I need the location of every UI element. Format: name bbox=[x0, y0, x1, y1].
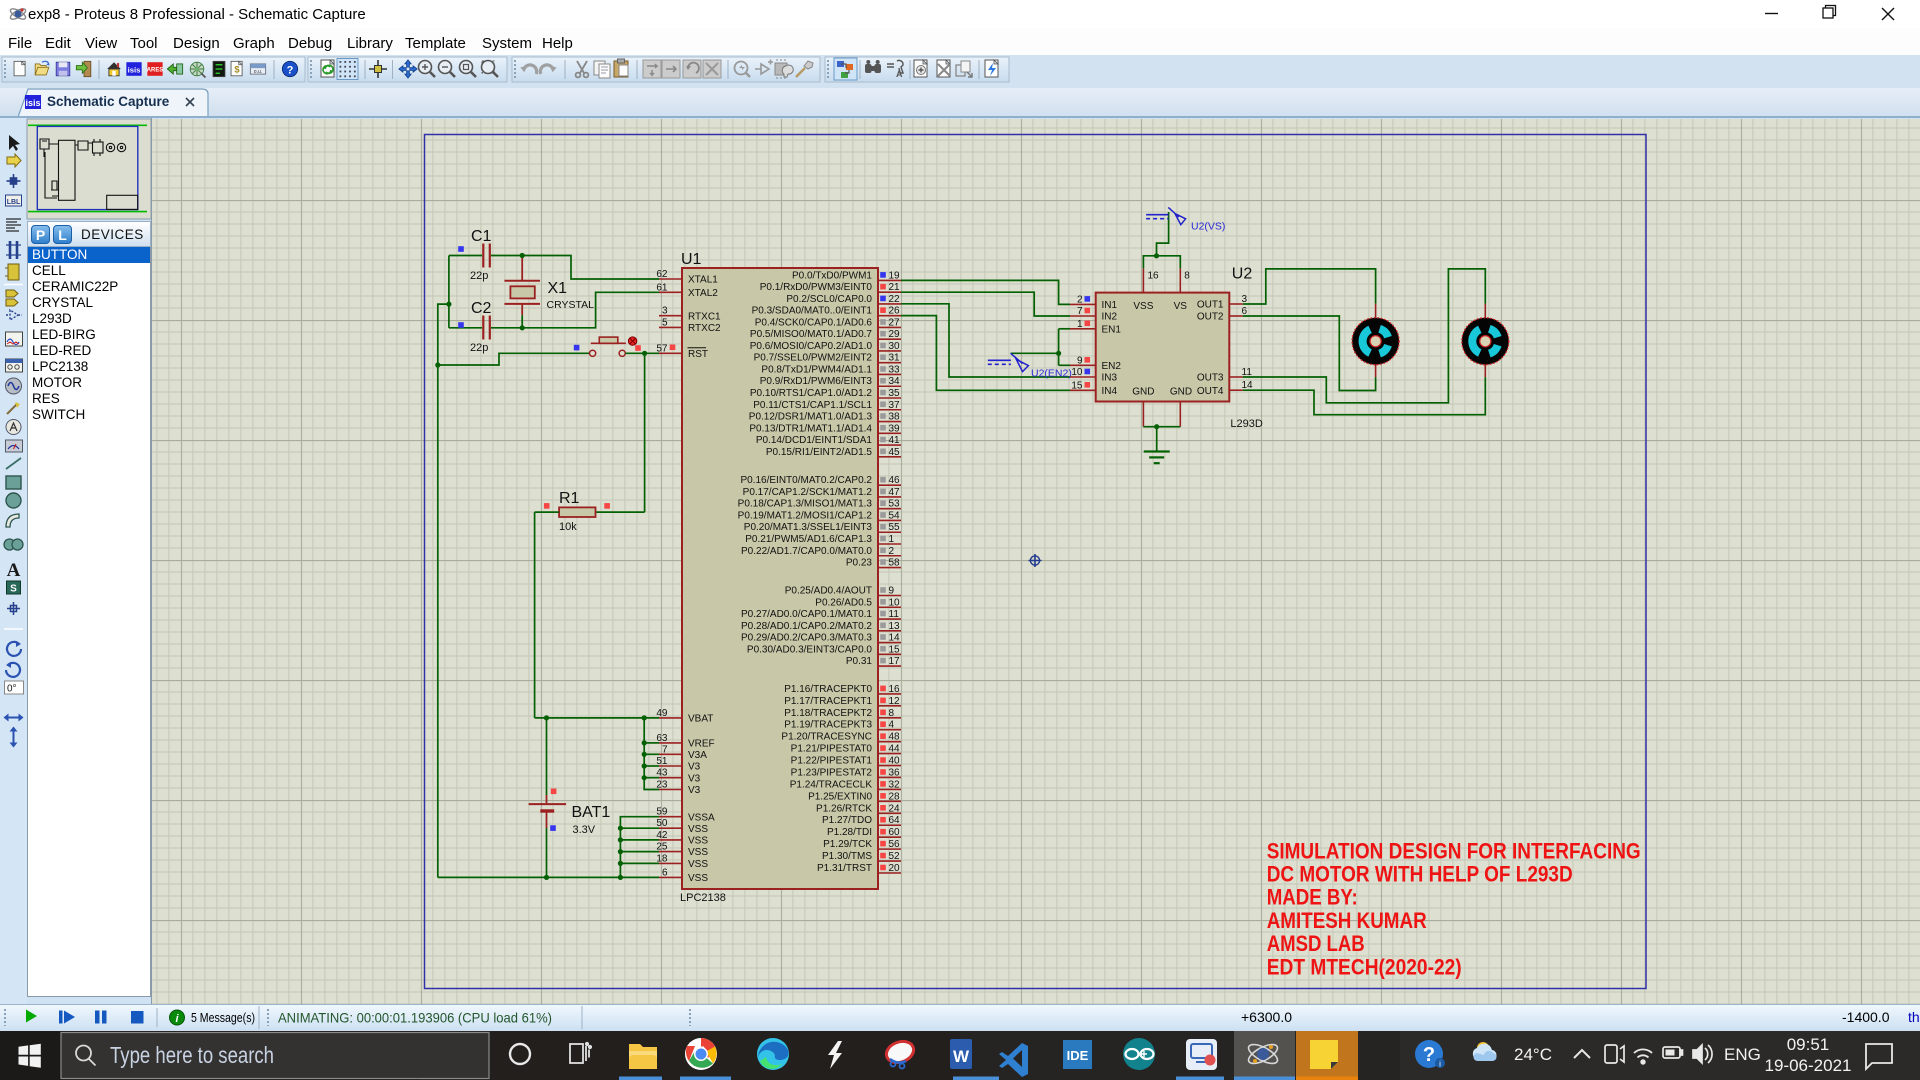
svg-text:XTAL1: XTAL1 bbox=[688, 275, 718, 286]
svg-text:ENG: ENG bbox=[1724, 1045, 1761, 1064]
svg-text:41: 41 bbox=[889, 435, 901, 446]
svg-text:CRYSTAL: CRYSTAL bbox=[547, 299, 595, 311]
svg-text:P1.28/TDI: P1.28/TDI bbox=[827, 827, 872, 838]
svg-text:44: 44 bbox=[889, 744, 901, 755]
svg-text:?: ? bbox=[287, 64, 294, 76]
svg-text:16: 16 bbox=[1148, 271, 1160, 282]
svg-text:P0.0/TxD0/PWM1: P0.0/TxD0/PWM1 bbox=[792, 270, 872, 281]
svg-text:29: 29 bbox=[889, 329, 901, 340]
svg-text:32: 32 bbox=[889, 779, 901, 790]
svg-text:27: 27 bbox=[889, 317, 901, 328]
svg-text:P0.28/AD0.1/CAP0.2/MAT0.2: P0.28/AD0.1/CAP0.2/MAT0.2 bbox=[741, 621, 872, 632]
svg-text:5: 5 bbox=[662, 317, 668, 328]
svg-text:P0.13/DTR1/MAT1.1/AD1.4: P0.13/DTR1/MAT1.1/AD1.4 bbox=[749, 423, 872, 434]
svg-text:7: 7 bbox=[1077, 306, 1083, 317]
svg-text:o.u.: o.u. bbox=[254, 69, 263, 75]
svg-text:28: 28 bbox=[889, 791, 901, 802]
svg-text:-1400.0: -1400.0 bbox=[1842, 1009, 1890, 1025]
svg-text:P0.29/AD0.2/CAP0.3/MAT0.3: P0.29/AD0.2/CAP0.3/MAT0.3 bbox=[741, 633, 872, 644]
svg-text:P1.18/TRACEPKT2: P1.18/TRACEPKT2 bbox=[784, 708, 872, 719]
svg-text:P1.21/PIPESTAT0: P1.21/PIPESTAT0 bbox=[791, 744, 873, 755]
svg-text:37: 37 bbox=[889, 400, 901, 411]
svg-text:XTAL2: XTAL2 bbox=[688, 288, 718, 299]
svg-text:P0.23: P0.23 bbox=[846, 558, 873, 569]
svg-text:21: 21 bbox=[889, 282, 901, 293]
svg-text:U2(VS): U2(VS) bbox=[1191, 221, 1225, 233]
svg-text:22p: 22p bbox=[470, 270, 488, 282]
svg-text:15: 15 bbox=[889, 644, 901, 655]
svg-text:64: 64 bbox=[889, 815, 901, 826]
svg-text:22: 22 bbox=[889, 294, 901, 305]
svg-text:2: 2 bbox=[889, 546, 895, 557]
svg-text:P1.22/PIPESTAT1: P1.22/PIPESTAT1 bbox=[791, 756, 873, 767]
svg-text:P0.7/SSEL0/PWM2/EINT2: P0.7/SSEL0/PWM2/EINT2 bbox=[754, 353, 873, 364]
svg-text:SIMULATION DESIGN FOR INTERFAC: SIMULATION DESIGN FOR INTERFACING bbox=[1267, 838, 1641, 863]
svg-text:P0.6/MOSI0/CAP0.2/AD1.0: P0.6/MOSI0/CAP0.2/AD1.0 bbox=[750, 341, 873, 352]
svg-text:53: 53 bbox=[889, 499, 901, 510]
svg-text:U2(EN2): U2(EN2) bbox=[1031, 368, 1072, 380]
svg-text:15: 15 bbox=[1071, 380, 1083, 391]
svg-text:BAT1: BAT1 bbox=[572, 804, 611, 821]
svg-text:V3: V3 bbox=[688, 773, 701, 784]
svg-text:8: 8 bbox=[889, 708, 895, 719]
svg-text:31: 31 bbox=[889, 353, 901, 364]
svg-text:P1.25/EXTIN0: P1.25/EXTIN0 bbox=[808, 791, 872, 802]
svg-text:5 Message(s): 5 Message(s) bbox=[191, 1010, 255, 1025]
svg-text:IN3: IN3 bbox=[1102, 373, 1118, 384]
svg-text:P0.4/SCK0/CAP0.1/AD0.6: P0.4/SCK0/CAP0.1/AD0.6 bbox=[755, 317, 873, 328]
svg-text:DC MOTOR WITH HELP OF L293D: DC MOTOR WITH HELP OF L293D bbox=[1267, 862, 1573, 887]
svg-text:9: 9 bbox=[889, 586, 895, 597]
svg-text:P1.20/TRACESYNC: P1.20/TRACESYNC bbox=[781, 732, 872, 743]
svg-text:L293D: L293D bbox=[1230, 418, 1262, 430]
svg-text:IN1: IN1 bbox=[1102, 300, 1118, 311]
svg-text:P0.26/AD0.5: P0.26/AD0.5 bbox=[815, 597, 872, 608]
svg-text:6: 6 bbox=[662, 867, 668, 878]
svg-text:19-06-2021: 19-06-2021 bbox=[1765, 1056, 1852, 1075]
svg-text:U1: U1 bbox=[681, 251, 702, 268]
svg-text:P0.9/RxD1/PWM6/EINT3: P0.9/RxD1/PWM6/EINT3 bbox=[760, 376, 873, 387]
svg-text:U2: U2 bbox=[1232, 266, 1253, 283]
svg-text:W: W bbox=[953, 1047, 970, 1066]
svg-text:P0.14/DCD1/EINT1/SDA1: P0.14/DCD1/EINT1/SDA1 bbox=[756, 435, 873, 446]
svg-text:10: 10 bbox=[889, 597, 901, 608]
svg-text:X1: X1 bbox=[548, 280, 568, 297]
svg-text:S: S bbox=[10, 584, 17, 595]
svg-text:09:51: 09:51 bbox=[1787, 1035, 1830, 1054]
svg-text:EN2: EN2 bbox=[1102, 361, 1122, 372]
svg-text:P0.16/EINT0/MAT0.2/CAP0.2: P0.16/EINT0/MAT0.2/CAP0.2 bbox=[740, 475, 872, 486]
svg-text:47: 47 bbox=[889, 487, 901, 498]
svg-text:P0.18/CAP1.3/MISO1/MAT1.3: P0.18/CAP1.3/MISO1/MAT1.3 bbox=[738, 499, 873, 510]
svg-text:VSSA: VSSA bbox=[688, 812, 715, 823]
svg-text:IDE: IDE bbox=[1067, 1048, 1089, 1063]
svg-text:P0.3/SDA0/MAT0..0/EINT1: P0.3/SDA0/MAT0..0/EINT1 bbox=[752, 306, 873, 317]
svg-text:56: 56 bbox=[889, 839, 901, 850]
svg-text:P0.17/CAP1.2/SCK1/MAT1.2: P0.17/CAP1.2/SCK1/MAT1.2 bbox=[743, 487, 873, 498]
svg-text:AMITESH KUMAR: AMITESH KUMAR bbox=[1267, 908, 1427, 933]
svg-text:14: 14 bbox=[889, 633, 901, 644]
svg-text:P0.12/DSR1/MAT1.0/AD1.3: P0.12/DSR1/MAT1.0/AD1.3 bbox=[749, 412, 873, 423]
svg-text:P0.5/MISO0/MAT0.1/AD0.7: P0.5/MISO0/MAT0.1/AD0.7 bbox=[750, 329, 873, 340]
svg-text:19: 19 bbox=[889, 270, 901, 281]
svg-text:EDT MTECH(2020-22): EDT MTECH(2020-22) bbox=[1267, 954, 1462, 979]
svg-text:P0.2/SCL0/CAP0.0: P0.2/SCL0/CAP0.0 bbox=[786, 294, 872, 305]
svg-text:24: 24 bbox=[889, 803, 901, 814]
svg-text:P1.16/TRACEPKT0: P1.16/TRACEPKT0 bbox=[784, 684, 872, 695]
svg-text:IN4: IN4 bbox=[1102, 386, 1118, 397]
svg-text:P0.31: P0.31 bbox=[846, 656, 873, 667]
svg-text:12: 12 bbox=[889, 696, 901, 707]
svg-text:R1: R1 bbox=[559, 490, 580, 507]
svg-text:P1.30/TMS: P1.30/TMS bbox=[822, 851, 872, 862]
svg-text:th: th bbox=[1908, 1009, 1920, 1025]
svg-text:45: 45 bbox=[889, 447, 901, 458]
svg-text:P0.25/AD0.4/AOUT: P0.25/AD0.4/AOUT bbox=[785, 586, 872, 597]
svg-text:P0.10/RTS1/CAP1.0/AD1.2: P0.10/RTS1/CAP1.0/AD1.2 bbox=[750, 388, 873, 399]
svg-text:3: 3 bbox=[662, 306, 668, 317]
svg-text:P0.1/RxD0/PWM3/EINT0: P0.1/RxD0/PWM3/EINT0 bbox=[760, 282, 873, 293]
svg-text:VREF: VREF bbox=[688, 739, 715, 750]
svg-text:30: 30 bbox=[889, 341, 901, 352]
svg-text:P1.17/TRACEPKT1: P1.17/TRACEPKT1 bbox=[784, 696, 872, 707]
svg-text:P0.19/MAT1.2/MOSI1/CAP1.2: P0.19/MAT1.2/MOSI1/CAP1.2 bbox=[738, 510, 873, 521]
svg-text:0°: 0° bbox=[7, 684, 17, 695]
svg-text:VSS: VSS bbox=[688, 859, 708, 870]
svg-text:58: 58 bbox=[889, 558, 901, 569]
svg-text:3.3V: 3.3V bbox=[573, 824, 596, 836]
svg-text:11: 11 bbox=[889, 609, 900, 620]
svg-text:VS: VS bbox=[1174, 301, 1188, 312]
svg-text:RTXC2: RTXC2 bbox=[688, 323, 721, 334]
svg-text:EN1: EN1 bbox=[1102, 324, 1122, 335]
svg-text:ANIMATING: 00:00:01.193906 (CP: ANIMATING: 00:00:01.193906 (CPU load 61%… bbox=[278, 1010, 552, 1026]
svg-text:35: 35 bbox=[889, 388, 901, 399]
svg-text:8: 8 bbox=[1184, 271, 1190, 282]
svg-text:33: 33 bbox=[889, 364, 901, 375]
svg-text:7: 7 bbox=[662, 744, 668, 755]
svg-text:OUT4: OUT4 bbox=[1197, 386, 1224, 397]
svg-text:A: A bbox=[7, 560, 21, 581]
svg-text:OUT1: OUT1 bbox=[1197, 300, 1224, 311]
svg-text:10: 10 bbox=[1071, 367, 1083, 378]
svg-text:V3: V3 bbox=[688, 785, 701, 796]
svg-text:P1.23/PIPESTAT2: P1.23/PIPESTAT2 bbox=[791, 767, 873, 778]
svg-text:VSS: VSS bbox=[688, 873, 708, 884]
svg-text:OUT3: OUT3 bbox=[1197, 373, 1224, 384]
svg-text:VSS: VSS bbox=[688, 824, 708, 835]
svg-text:+6300.0: +6300.0 bbox=[1241, 1009, 1292, 1025]
svg-text:P1.24/TRACECLK: P1.24/TRACECLK bbox=[790, 779, 873, 790]
svg-text:17: 17 bbox=[889, 656, 901, 667]
svg-text:C1: C1 bbox=[471, 228, 492, 245]
svg-text:48: 48 bbox=[889, 732, 901, 743]
svg-text:P1.27/TDO: P1.27/TDO bbox=[822, 815, 872, 826]
svg-text:i: i bbox=[1439, 1060, 1441, 1069]
svg-text:4: 4 bbox=[889, 720, 895, 731]
svg-text:9: 9 bbox=[1077, 355, 1083, 366]
svg-text:P1.29/TCK: P1.29/TCK bbox=[823, 839, 872, 850]
svg-text:46: 46 bbox=[889, 475, 901, 486]
svg-text:VSS: VSS bbox=[688, 836, 708, 847]
svg-text:52: 52 bbox=[889, 851, 901, 862]
svg-text:20: 20 bbox=[889, 863, 901, 874]
svg-text:P0.22/AD1.7/CAP0.0/MAT0.0: P0.22/AD1.7/CAP0.0/MAT0.0 bbox=[741, 546, 872, 557]
svg-text:34: 34 bbox=[889, 376, 901, 387]
svg-text:LPC2138: LPC2138 bbox=[680, 892, 726, 904]
svg-text:40: 40 bbox=[889, 756, 901, 767]
svg-text:VBAT: VBAT bbox=[688, 714, 713, 725]
svg-text:VSS: VSS bbox=[688, 847, 708, 858]
svg-text:VSS: VSS bbox=[1133, 301, 1153, 312]
svg-text:RST: RST bbox=[688, 349, 708, 360]
svg-text:P0.11/CTS1/CAP1.1/SCL1: P0.11/CTS1/CAP1.1/SCL1 bbox=[753, 400, 872, 411]
svg-text:P0.30/AD0.3/EINT3/CAP0.0: P0.30/AD0.3/EINT3/CAP0.0 bbox=[747, 644, 873, 655]
svg-text:13: 13 bbox=[889, 621, 901, 632]
svg-text:MADE BY:: MADE BY: bbox=[1267, 885, 1358, 910]
svg-text:36: 36 bbox=[889, 767, 901, 778]
svg-text:10k: 10k bbox=[559, 521, 577, 533]
svg-text:?: ? bbox=[1423, 1044, 1435, 1066]
svg-text:P0.20/MAT1.3/SSEL1/EINT3: P0.20/MAT1.3/SSEL1/EINT3 bbox=[744, 522, 873, 533]
svg-text:P0.21/PWM5/AD1.6/CAP1.3: P0.21/PWM5/AD1.6/CAP1.3 bbox=[745, 534, 872, 545]
svg-text:1: 1 bbox=[889, 534, 895, 545]
svg-text:22p: 22p bbox=[470, 342, 488, 354]
svg-text:54: 54 bbox=[889, 510, 901, 521]
svg-text:Type here to search: Type here to search bbox=[110, 1042, 274, 1068]
svg-text:2: 2 bbox=[1077, 294, 1083, 305]
svg-text:GND: GND bbox=[1132, 387, 1154, 398]
svg-text:1: 1 bbox=[1077, 319, 1083, 330]
svg-text:38: 38 bbox=[889, 412, 901, 423]
svg-text:60: 60 bbox=[889, 827, 901, 838]
svg-text:RTXC1: RTXC1 bbox=[688, 311, 721, 322]
svg-text:24°C: 24°C bbox=[1514, 1045, 1552, 1064]
svg-text:P1.31/TRST: P1.31/TRST bbox=[817, 863, 872, 874]
svg-text:AMSD LAB: AMSD LAB bbox=[1267, 931, 1365, 956]
svg-text:C2: C2 bbox=[471, 300, 492, 317]
svg-text:V3A: V3A bbox=[688, 750, 707, 761]
svg-text:GND: GND bbox=[1170, 387, 1192, 398]
svg-text:OUT2: OUT2 bbox=[1197, 312, 1224, 323]
svg-text:39: 39 bbox=[889, 423, 901, 434]
svg-text:55: 55 bbox=[889, 522, 901, 533]
svg-text:26: 26 bbox=[889, 306, 901, 317]
svg-text:P0.8/TxD1/PWM4/AD1.1: P0.8/TxD1/PWM4/AD1.1 bbox=[761, 364, 872, 375]
svg-text:V3: V3 bbox=[688, 762, 701, 773]
svg-text:16: 16 bbox=[889, 684, 901, 695]
svg-text:P1.19/TRACEPKT3: P1.19/TRACEPKT3 bbox=[784, 720, 872, 731]
svg-text:P0.15/RI1/EINT2/AD1.5: P0.15/RI1/EINT2/AD1.5 bbox=[766, 447, 873, 458]
svg-text:A: A bbox=[896, 69, 903, 79]
svg-text:$: $ bbox=[234, 64, 240, 74]
svg-text:P0.27/AD0.0/CAP0.1/MAT0.1: P0.27/AD0.0/CAP0.1/MAT0.1 bbox=[741, 609, 872, 620]
svg-text:IN2: IN2 bbox=[1102, 312, 1118, 323]
svg-text:P1.26/RTCK: P1.26/RTCK bbox=[816, 803, 872, 814]
